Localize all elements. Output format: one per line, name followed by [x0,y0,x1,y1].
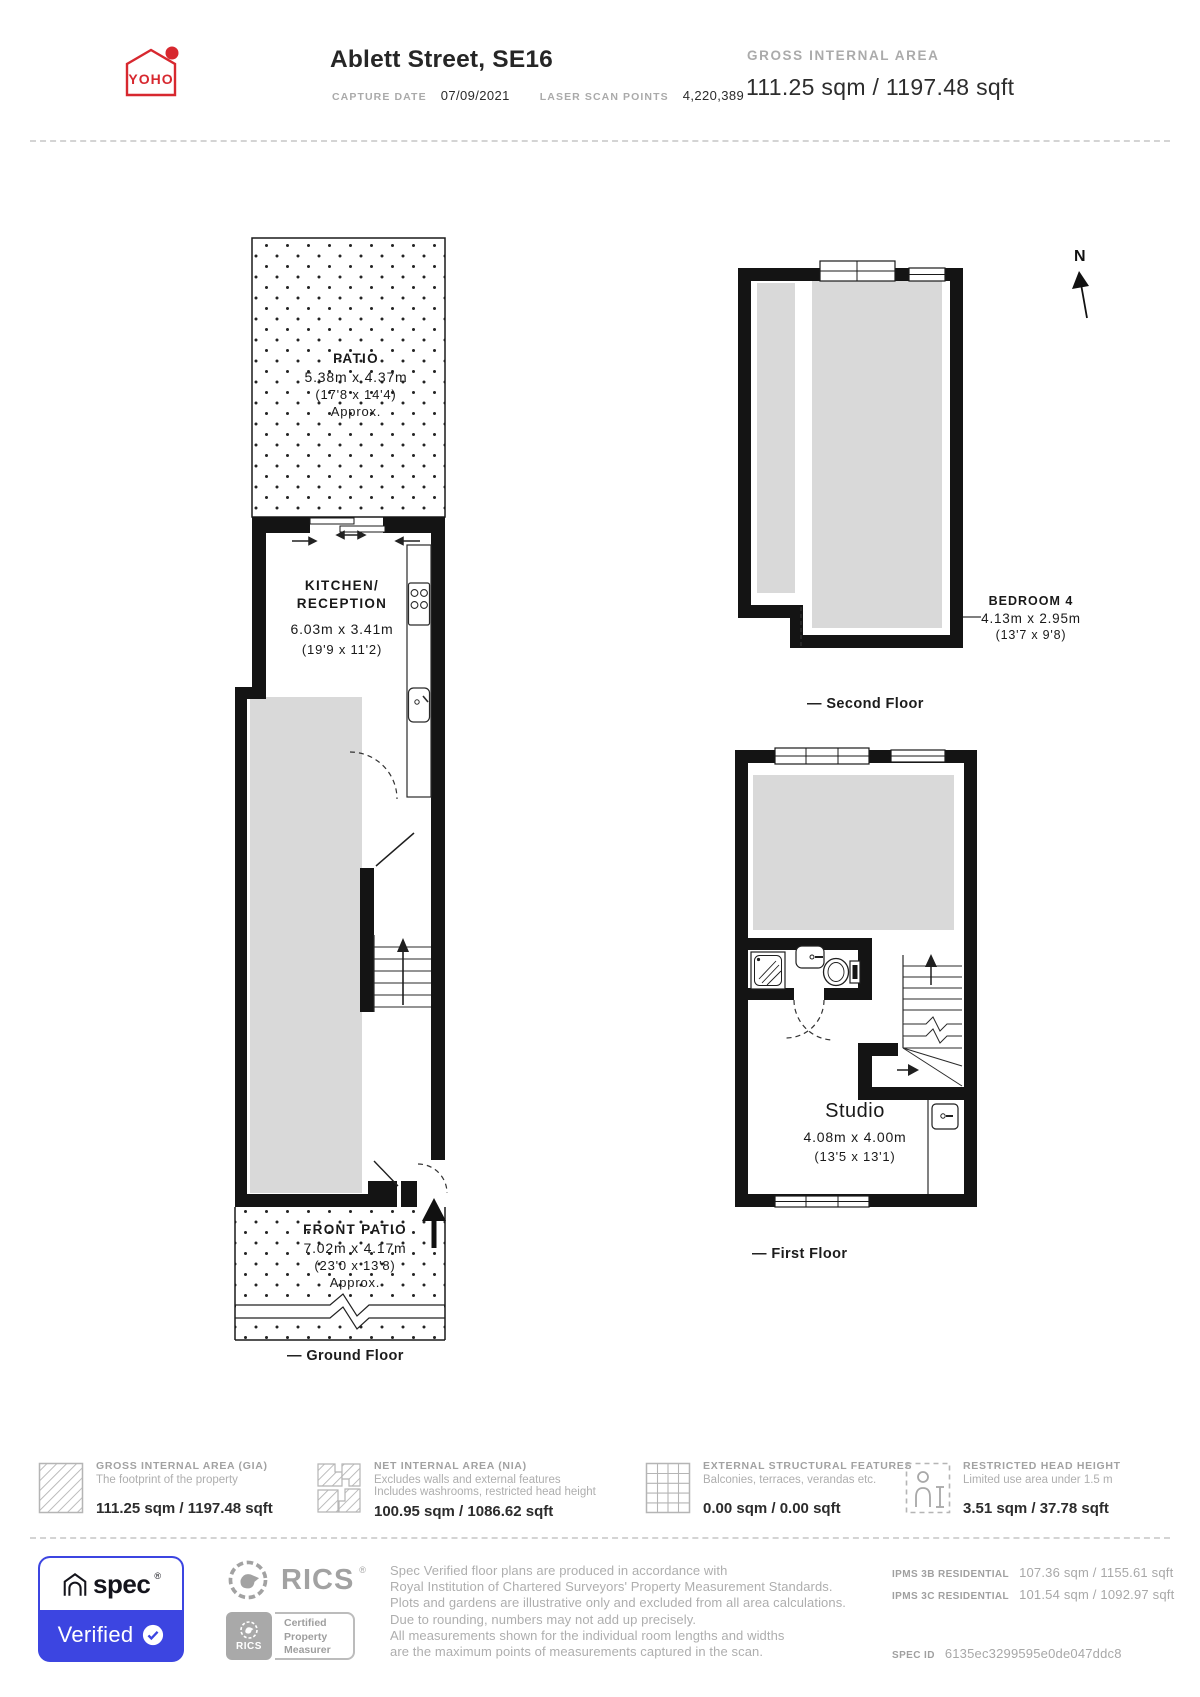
bedroom4-imperial: (13'7 x 9'8) [972,627,1090,644]
kitchen-name-line1: KITCHEN/ [262,577,422,595]
capture-meta: CAPTURE DATE 07/09/2021 LASER SCAN POINT… [332,88,744,103]
front-patio-approx: Approx. [255,1274,455,1291]
yoho-logo-text: YOHO [128,71,173,87]
kitchen-imperial: (19'9 x 11'2) [262,641,422,658]
north-label: N [1074,248,1086,266]
second-floor-plan [738,261,1089,648]
studio-metric: 4.08m x 4.00m [788,1128,922,1146]
studio-name: Studio [788,1098,922,1124]
studio-imperial: (13'5 x 13'1) [788,1148,922,1165]
gia-header-value: 111.25 sqm / 1197.48 sqft [746,74,1014,101]
yoho-house-icon: YOHO [118,42,182,98]
second-floor-label: — Second Floor [807,696,924,712]
front-patio-imperial: (23'0 x 13'8) [255,1257,455,1274]
bedroom4-metric: 4.13m x 2.95m [972,610,1090,627]
patio-name: PATIO [260,350,452,368]
yoho-logo: YOHO [118,42,182,103]
patio-metric: 5.38m x 4.37m [260,368,452,386]
gia-header-label: GROSS INTERNAL AREA [747,48,939,63]
kitchen-name-line2: RECEPTION [262,595,422,613]
ground-floor-label: — Ground Floor [287,1348,404,1364]
laser-scan-points-label: LASER SCAN POINTS [540,91,669,103]
floorplan-graphics [0,0,1200,1697]
bedroom4-label: BEDROOM 4 4.13m x 2.95m (13'7 x 9'8) [972,593,1090,644]
patio-imperial: (17'8 x 14'4) [260,386,452,403]
capture-date-value: 07/09/2021 [441,88,510,103]
front-patio-name: FRONT PATIO [255,1221,455,1239]
header-divider [30,140,1170,142]
capture-date-label: CAPTURE DATE [332,91,427,103]
first-floor-label: — First Floor [752,1246,847,1262]
front-patio-metric: 7.02m x 4.17m [255,1239,455,1257]
laser-scan-points-value: 4,220,389 [683,88,744,103]
bedroom4-name: BEDROOM 4 [972,593,1090,610]
studio-label: Studio 4.08m x 4.00m (13'5 x 13'1) [788,1098,922,1165]
footer-divider [30,1537,1170,1539]
kitchen-metric: 6.03m x 3.41m [262,620,422,638]
patio-approx: Approx. [260,403,452,420]
floorplan-page: YOHO Ablett Street, SE16 CAPTURE DATE 07… [0,0,1200,1697]
page-title: Ablett Street, SE16 [330,46,553,74]
patio-label: PATIO 5.38m x 4.37m (17'8 x 14'4) Approx… [260,350,452,420]
kitchen-label: KITCHEN/ RECEPTION 6.03m x 3.41m (19'9 x… [262,577,422,658]
front-patio-label: FRONT PATIO 7.02m x 4.17m (23'0 x 13'8) … [255,1221,455,1291]
